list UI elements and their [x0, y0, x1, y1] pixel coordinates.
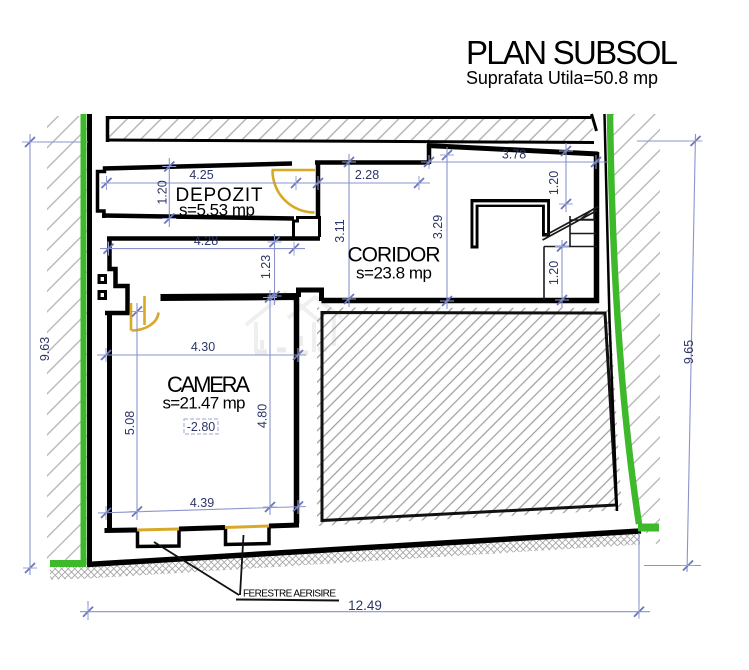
svg-text:s=23.8 mp: s=23.8 mp: [356, 264, 432, 283]
svg-text:PLAN SUBSOL: PLAN SUBSOL: [466, 34, 678, 71]
svg-text:3.11: 3.11: [333, 219, 347, 242]
svg-text:s=5.53 mp: s=5.53 mp: [179, 201, 255, 220]
svg-text:12.49: 12.49: [348, 598, 382, 613]
svg-text:FERESTRE AERISIRE: FERESTRE AERISIRE: [243, 589, 336, 600]
svg-text:4.25: 4.25: [189, 168, 213, 182]
svg-text:4.28: 4.28: [194, 234, 218, 248]
svg-text:1.20: 1.20: [547, 171, 561, 195]
svg-text:4.39: 4.39: [190, 496, 214, 510]
svg-text:4.30: 4.30: [191, 340, 215, 354]
svg-text:9.65: 9.65: [682, 340, 696, 364]
svg-text:3.29: 3.29: [431, 215, 445, 239]
svg-text:4.80: 4.80: [256, 404, 270, 428]
svg-text:1.20: 1.20: [547, 261, 561, 285]
svg-text:9.63: 9.63: [38, 337, 52, 361]
svg-text:5.08: 5.08: [123, 411, 137, 435]
svg-text:s=21.47 mp: s=21.47 mp: [163, 394, 246, 413]
svg-text:1.20: 1.20: [156, 180, 170, 204]
svg-text:1.23: 1.23: [259, 255, 273, 279]
svg-text:3.78: 3.78: [502, 148, 526, 162]
svg-text:2.28: 2.28: [355, 168, 379, 182]
svg-text:Suprafata Utila=50.8 mp: Suprafata Utila=50.8 mp: [466, 68, 658, 88]
svg-text:-2.80: -2.80: [187, 420, 216, 434]
